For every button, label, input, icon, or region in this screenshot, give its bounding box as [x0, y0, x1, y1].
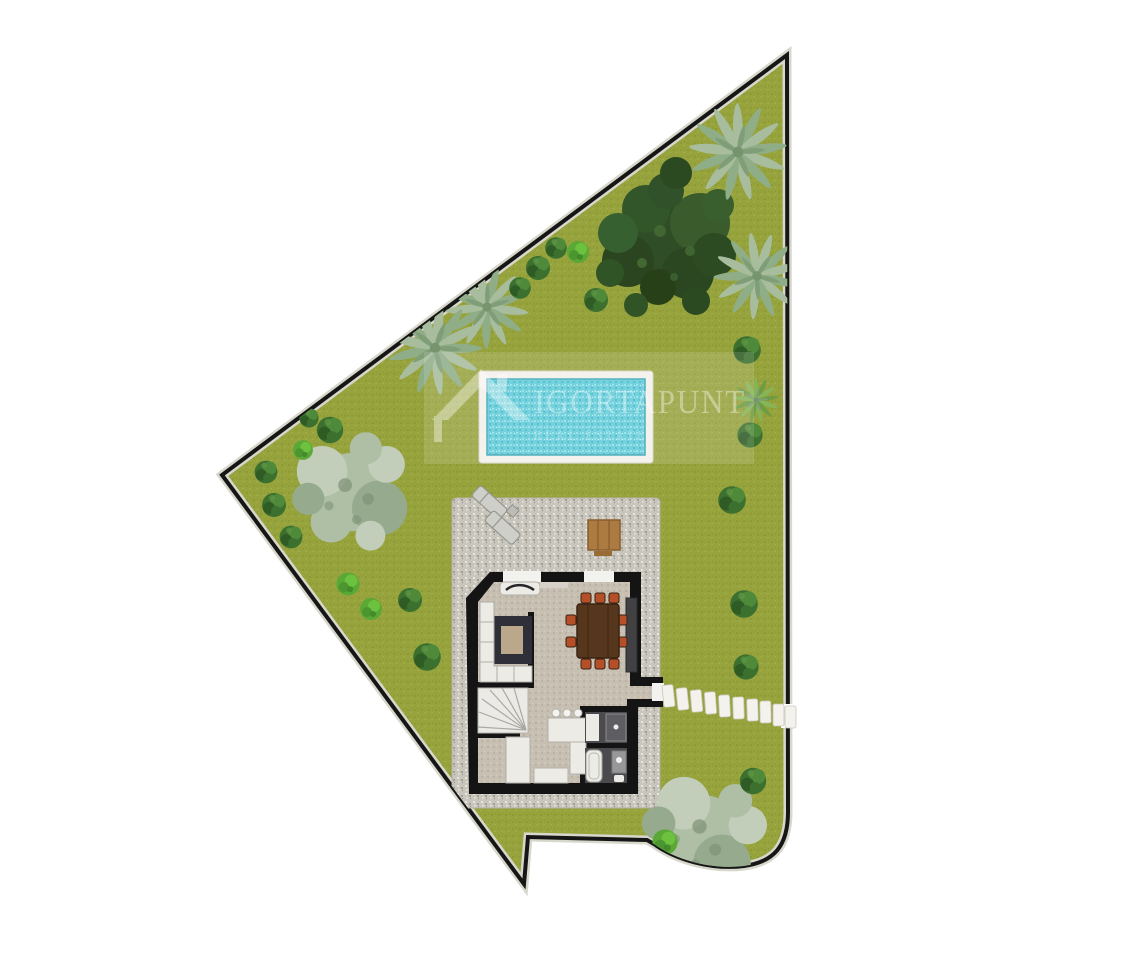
stool [574, 709, 582, 717]
stepping-stone [690, 690, 703, 713]
kitchen-island [548, 718, 586, 742]
site-plan-canvas: IGORTAPUNT REAL ESTATE [0, 0, 1125, 960]
watermark-brand: IGORTAPUNT [534, 384, 746, 421]
shower-door [586, 714, 599, 741]
bush [413, 643, 441, 671]
stepping-stone [676, 687, 689, 710]
stepping-stone [704, 692, 717, 715]
bush [730, 590, 758, 618]
staircase [478, 688, 528, 733]
kitchen-cabinets [506, 737, 530, 783]
stepping-stone [785, 706, 796, 728]
site-plan-page: IGORTAPUNT REAL ESTATE [0, 0, 1125, 960]
bush [718, 486, 746, 514]
stepping-stone [747, 699, 759, 721]
bush [733, 654, 758, 679]
bush [567, 241, 589, 263]
watermark-tagline: REAL ESTATE [534, 428, 648, 444]
bush [526, 256, 550, 280]
bush [398, 588, 422, 612]
sideboard [626, 598, 637, 672]
bush [545, 237, 567, 259]
stepping-stone [733, 697, 745, 719]
bush [255, 461, 278, 484]
bush [740, 768, 766, 794]
stool [563, 709, 571, 717]
bush [509, 277, 531, 299]
bush [262, 493, 286, 517]
bathtub [586, 750, 602, 782]
kitchen-counter [570, 742, 586, 774]
stepping-stone [773, 704, 784, 726]
kitchen-appliance [534, 768, 568, 783]
garden-table [588, 520, 620, 556]
watermark: IGORTAPUNT REAL ESTATE [424, 352, 754, 464]
stepping-stone [718, 695, 730, 718]
window [584, 571, 614, 582]
window [503, 571, 541, 582]
stepping-stone [760, 701, 771, 723]
window-sill [540, 582, 568, 588]
sink [616, 757, 622, 763]
stool [552, 709, 560, 717]
bush [360, 598, 382, 620]
dining-table [577, 604, 619, 658]
shower-drain [614, 725, 619, 730]
bush [293, 440, 313, 460]
stepping-stone [662, 684, 675, 707]
toilet [614, 775, 624, 782]
bush [317, 417, 343, 443]
bush [336, 572, 359, 595]
bush [280, 526, 303, 549]
rug-throw [501, 626, 523, 654]
garden-bench [594, 551, 612, 556]
bush [584, 288, 608, 312]
house [466, 571, 664, 794]
